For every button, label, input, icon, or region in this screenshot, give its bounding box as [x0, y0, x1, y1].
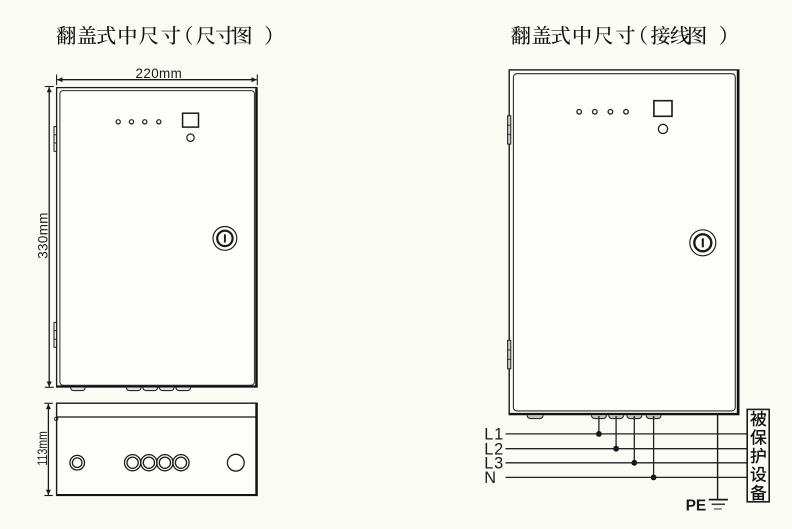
svg-text:220mm: 220mm: [136, 66, 183, 81]
svg-text:113mm: 113mm: [35, 431, 50, 466]
svg-text:330mm: 330mm: [36, 212, 51, 259]
svg-text:N: N: [484, 469, 497, 487]
svg-text:PE: PE: [686, 497, 707, 514]
